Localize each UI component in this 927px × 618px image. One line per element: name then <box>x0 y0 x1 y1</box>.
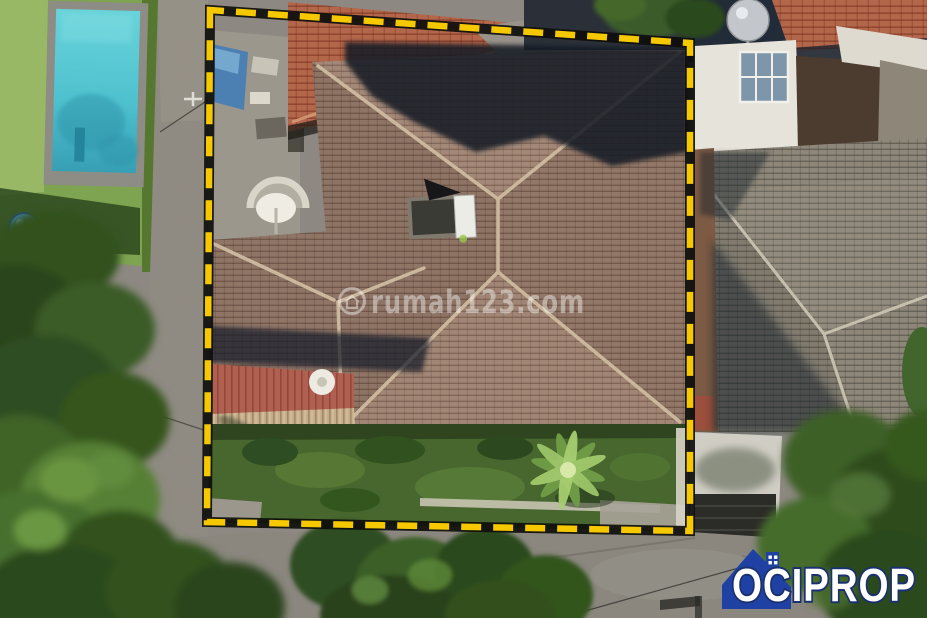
gray-slab <box>878 60 927 152</box>
aerial-photo-canvas: rumah123.com OCIPROP <box>0 0 927 618</box>
pool-highlight <box>61 13 132 43</box>
red-patch <box>692 396 714 430</box>
rooftop-clutter <box>255 117 287 140</box>
dish-center <box>317 377 327 387</box>
garden-yard <box>207 424 688 531</box>
eaves-shadow <box>210 424 686 440</box>
tank-highlight <box>736 7 748 19</box>
pole-shadow <box>695 596 702 618</box>
brown-roof-section <box>796 56 884 150</box>
bush <box>477 436 533 460</box>
neighbor-window <box>740 52 788 102</box>
watermark-text: rumah123.com <box>371 283 585 321</box>
aerial-property-photo: rumah123.com OCIPROP <box>0 0 927 618</box>
bush <box>355 436 425 464</box>
ociprop-logo-text: OCIPROP <box>732 559 916 611</box>
grass-patch <box>610 453 670 481</box>
watermark: rumah123.com <box>340 283 586 321</box>
bright-lawn-strip <box>0 0 48 196</box>
swimming-pool <box>44 1 149 188</box>
water-heater-unit <box>454 195 476 238</box>
driveway-shadow <box>695 448 775 492</box>
road-light-patch <box>158 0 208 122</box>
rooftop-clutter <box>250 92 270 104</box>
property-interior <box>207 0 690 531</box>
bush <box>320 488 380 512</box>
neighbor-house-roof <box>690 138 927 432</box>
vent-opening <box>411 199 457 235</box>
bush <box>242 438 298 466</box>
silver-water-tank <box>727 0 769 41</box>
palm-crown <box>560 462 576 478</box>
pool-steps <box>74 127 85 161</box>
brand-logo: OCIPROP <box>722 549 916 611</box>
